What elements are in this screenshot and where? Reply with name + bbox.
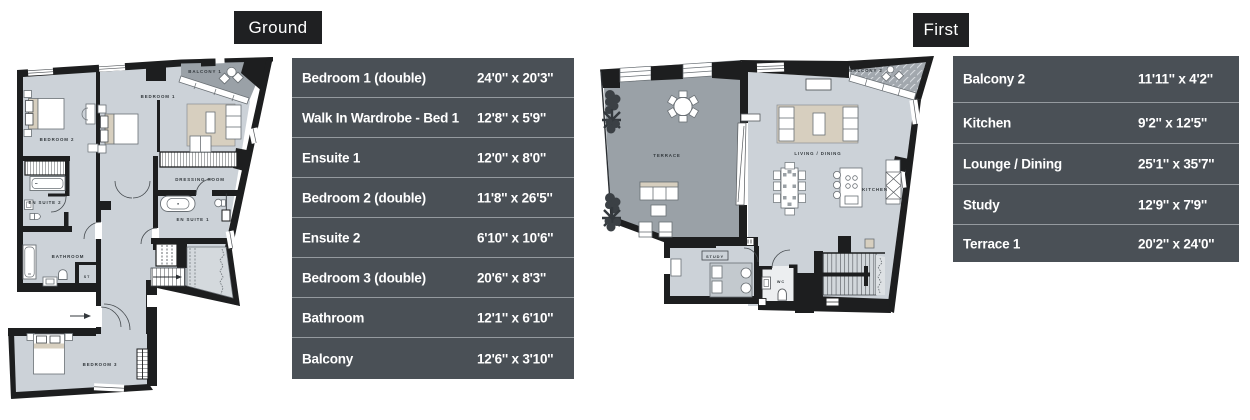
svg-text:ST: ST [84, 275, 90, 279]
svg-text:BALCONY 1: BALCONY 1 [188, 69, 221, 74]
svg-text:EN SUITE 1: EN SUITE 1 [177, 217, 210, 222]
svg-text:DRESSING ROOM: DRESSING ROOM [175, 177, 225, 182]
svg-text:BALCONY 2: BALCONY 2 [849, 68, 882, 73]
svg-text:BEDROOM 1: BEDROOM 1 [141, 94, 176, 99]
svg-text:BEDROOM 2: BEDROOM 2 [40, 137, 75, 142]
svg-text:TERRACE: TERRACE [653, 153, 681, 158]
svg-text:KITCHEN: KITCHEN [862, 187, 888, 192]
svg-text:BATHROOM: BATHROOM [52, 254, 85, 259]
svg-text:LIVING / DINING: LIVING / DINING [794, 151, 841, 156]
svg-text:WC: WC [777, 280, 785, 284]
svg-text:BEDROOM 3: BEDROOM 3 [83, 362, 118, 367]
svg-text:EN SUITE 2: EN SUITE 2 [29, 200, 62, 205]
svg-text:STUDY: STUDY [706, 254, 724, 259]
